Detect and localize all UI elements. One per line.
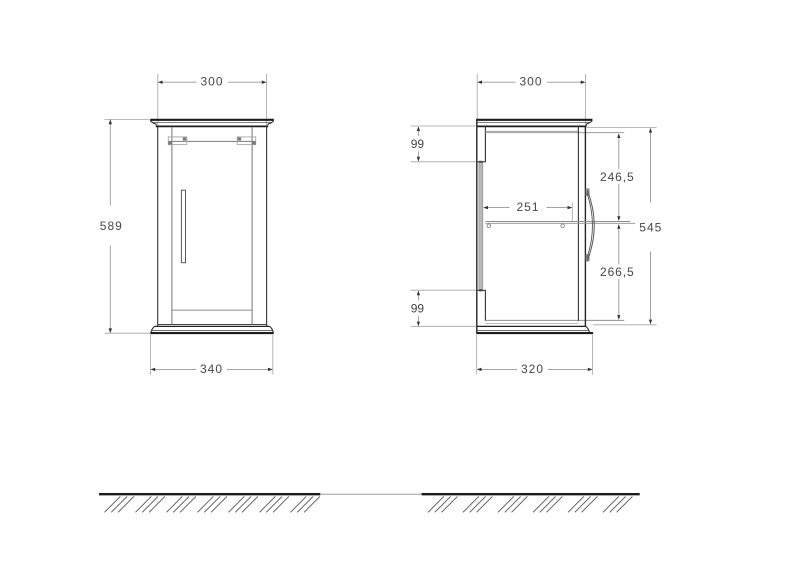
svg-text:246,5: 246,5	[600, 170, 635, 184]
svg-text:266,5: 266,5	[600, 265, 635, 279]
svg-text:340: 340	[200, 362, 223, 376]
svg-text:99: 99	[411, 137, 425, 151]
svg-text:589: 589	[100, 219, 123, 233]
svg-text:99: 99	[411, 301, 425, 315]
svg-text:300: 300	[200, 75, 223, 89]
svg-text:320: 320	[521, 362, 544, 376]
svg-text:300: 300	[519, 75, 542, 89]
svg-text:251: 251	[516, 200, 539, 214]
svg-text:545: 545	[639, 220, 662, 234]
